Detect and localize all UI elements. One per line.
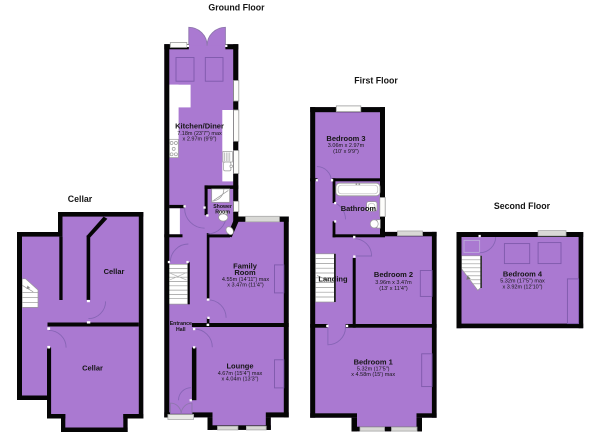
- svg-text:First Floor: First Floor: [354, 75, 398, 85]
- svg-text:x 3.92m (12'10"): x 3.92m (12'10"): [503, 285, 543, 291]
- svg-text:Room: Room: [215, 210, 230, 216]
- svg-text:(13' x 11'4"): (13' x 11'4"): [379, 286, 408, 292]
- svg-text:Cellar: Cellar: [82, 363, 103, 372]
- svg-text:Bedroom 1: Bedroom 1: [354, 357, 393, 366]
- svg-text:Bedroom 4: Bedroom 4: [503, 269, 543, 278]
- svg-text:Bathroom: Bathroom: [341, 204, 377, 213]
- svg-text:Cellar: Cellar: [104, 267, 125, 276]
- svg-text:Lounge: Lounge: [226, 362, 253, 371]
- svg-text:(10' x 9'9"): (10' x 9'9"): [333, 149, 359, 155]
- svg-text:Hall: Hall: [176, 327, 186, 333]
- svg-text:x 3.47m (11'4"): x 3.47m (11'4"): [227, 283, 264, 289]
- svg-text:Entrance: Entrance: [170, 321, 192, 327]
- svg-text:x 4.04m (13'3"): x 4.04m (13'3"): [222, 376, 259, 382]
- svg-text:Landing: Landing: [318, 274, 348, 283]
- svg-text:Room: Room: [234, 268, 256, 277]
- svg-text:Cellar: Cellar: [68, 194, 93, 204]
- svg-text:x 2.97m (9'9"): x 2.97m (9'9"): [183, 136, 217, 142]
- svg-text:Bedroom 2: Bedroom 2: [374, 270, 413, 279]
- svg-text:Bedroom 3: Bedroom 3: [326, 134, 365, 143]
- svg-text:x 4.58m (15') max: x 4.58m (15') max: [351, 372, 395, 378]
- svg-text:Ground Floor: Ground Floor: [208, 2, 265, 12]
- svg-text:Kitchen/Diner: Kitchen/Diner: [175, 122, 224, 131]
- svg-text:Second Floor: Second Floor: [494, 201, 551, 211]
